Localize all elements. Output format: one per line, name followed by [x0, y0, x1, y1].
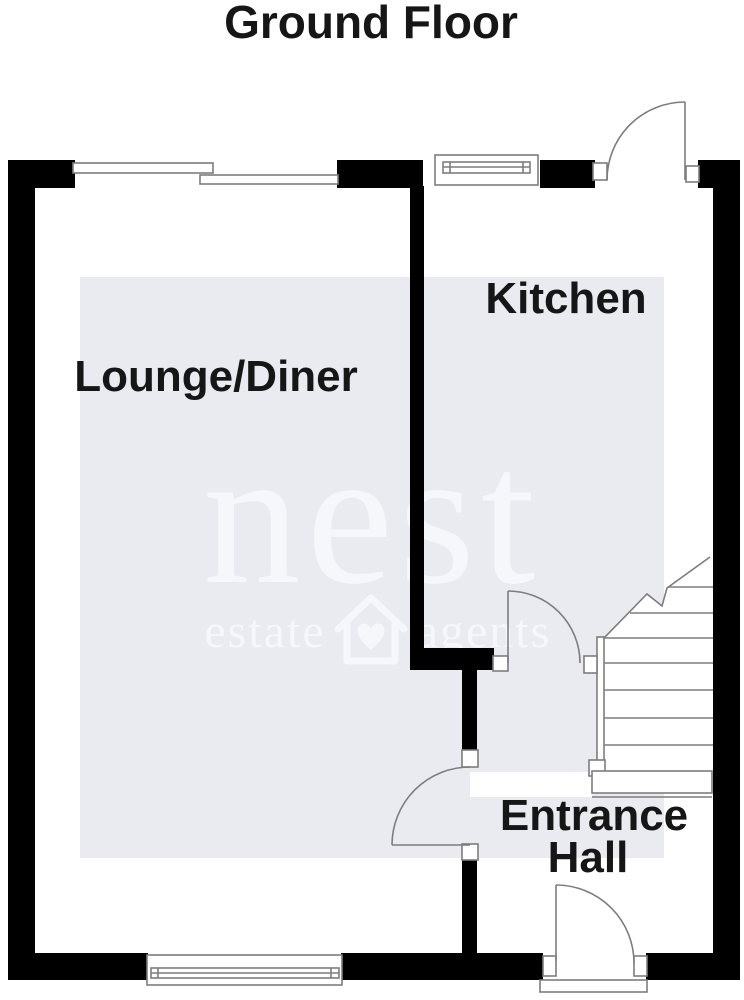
- door-swing-arc: [556, 885, 634, 963]
- door-jamb: [543, 956, 556, 976]
- wall-lounge-hall-upper: [462, 670, 477, 751]
- room-label-kitchen: Kitchen: [485, 274, 646, 323]
- wall-top-middle: [337, 160, 423, 188]
- door-jamb: [686, 166, 699, 182]
- wall-left: [8, 160, 35, 980]
- stair-bottom-step: [592, 771, 712, 793]
- wall-lounge-hall-lower: [462, 860, 477, 954]
- floorplan-page: Ground Floor nest estate agents: [0, 0, 744, 1000]
- entrance-step: [540, 980, 647, 992]
- wall-top-left-block: [8, 160, 75, 188]
- wall-right: [713, 160, 740, 980]
- watermark-logo: nest estate agents: [203, 409, 551, 661]
- wall-kitchen-hall: [410, 648, 494, 670]
- page-title: Ground Floor: [224, 0, 518, 48]
- door-jamb: [593, 163, 607, 180]
- window-top-left: [73, 163, 338, 184]
- door-kitchen-exterior: [593, 102, 699, 182]
- stair-handrail: [597, 637, 604, 762]
- room-label-entrance-line2: Hall: [548, 833, 629, 882]
- door-jamb: [462, 844, 478, 860]
- wall-top-right-of-window: [540, 160, 595, 188]
- room-label-lounge-diner: Lounge/Diner: [74, 352, 358, 401]
- window-bottom-lounge: [147, 955, 342, 985]
- wall-bottom-middle: [341, 953, 543, 980]
- floorplan-canvas: Ground Floor nest estate agents: [0, 0, 744, 1000]
- wall-bottom-right: [646, 953, 740, 980]
- watermark-brand-text: nest: [203, 409, 541, 625]
- door-jamb: [584, 656, 597, 673]
- wall-bottom-left: [8, 953, 148, 980]
- watermark-estate-text: estate: [204, 605, 325, 658]
- door-swing-arc: [607, 102, 685, 180]
- door-jamb: [493, 656, 508, 671]
- door-front-entrance: [540, 885, 647, 992]
- wall-lounge-kitchen-divider: [410, 186, 424, 670]
- door-jamb: [634, 956, 647, 976]
- door-jamb: [462, 750, 478, 767]
- window-top-kitchen: [435, 155, 538, 185]
